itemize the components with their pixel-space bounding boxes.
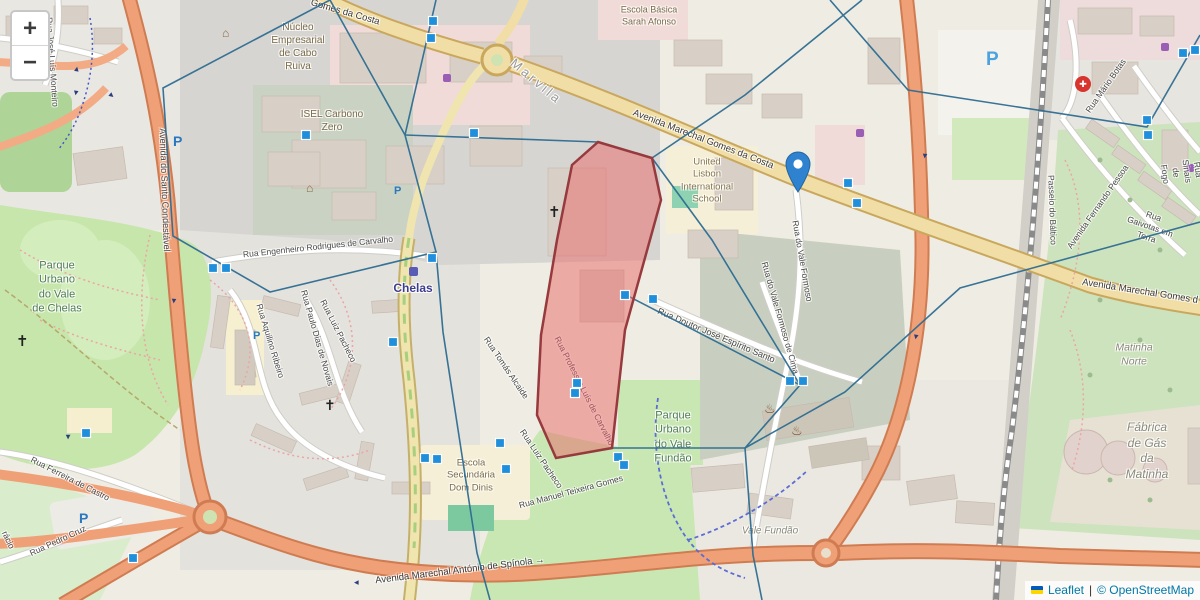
- mesh-line[interactable]: [628, 296, 800, 385]
- mesh-line[interactable]: [163, 0, 490, 600]
- vertex-handle[interactable]: [427, 34, 436, 43]
- vertex-handle[interactable]: [1191, 46, 1200, 55]
- vertex-handle[interactable]: [496, 439, 505, 448]
- vertex-handle[interactable]: [433, 455, 442, 464]
- vertex-handle[interactable]: [573, 379, 582, 388]
- ukraine-flag-icon: [1031, 586, 1043, 594]
- vertex-handle[interactable]: [621, 291, 630, 300]
- mesh-line[interactable]: [652, 158, 800, 448]
- map-canvas[interactable]: Rua José Luís Monteiro Avenida do Santo …: [0, 0, 1200, 600]
- mesh-line[interactable]: [830, 0, 1200, 127]
- mesh-line[interactable]: [652, 0, 862, 158]
- vertex-handle[interactable]: [1143, 116, 1152, 125]
- vertex-handle[interactable]: [389, 338, 398, 347]
- vertex-handle[interactable]: [470, 129, 479, 138]
- vertex-handle[interactable]: [82, 429, 91, 438]
- selected-zone-polygon[interactable]: [537, 142, 661, 458]
- mesh-line[interactable]: [330, 0, 436, 252]
- vertex-handle[interactable]: [502, 465, 511, 474]
- vertex-handle[interactable]: [1144, 131, 1153, 140]
- vertex-handle[interactable]: [222, 264, 231, 273]
- vertex-handle[interactable]: [853, 199, 862, 208]
- vector-overlay: [0, 0, 1200, 600]
- vertex-handle[interactable]: [129, 554, 138, 563]
- vertex-handle[interactable]: [799, 377, 808, 386]
- mesh-line[interactable]: [745, 448, 762, 600]
- mesh-line[interactable]: [745, 222, 1200, 448]
- zoom-out-button[interactable]: −: [12, 45, 48, 79]
- vertex-handle[interactable]: [429, 17, 438, 26]
- vertex-handle[interactable]: [428, 254, 437, 263]
- vertex-handle[interactable]: [786, 377, 795, 386]
- vertex-handle[interactable]: [302, 131, 311, 140]
- attribution-separator: |: [1089, 583, 1092, 597]
- zoom-in-button[interactable]: +: [12, 12, 48, 45]
- vertex-handle[interactable]: [571, 389, 580, 398]
- vertex-handle[interactable]: [209, 264, 218, 273]
- vertex-handle[interactable]: [649, 295, 658, 304]
- openstreetmap-link[interactable]: © OpenStreetMap: [1097, 583, 1194, 597]
- zoom-control: + −: [10, 10, 50, 81]
- vertex-handle[interactable]: [1179, 49, 1188, 58]
- vertex-handle[interactable]: [620, 461, 629, 470]
- vertex-handle[interactable]: [421, 454, 430, 463]
- vertex-handle[interactable]: [844, 179, 853, 188]
- attribution-bar: Leaflet | © OpenStreetMap: [1025, 581, 1200, 600]
- leaflet-link[interactable]: Leaflet: [1048, 583, 1084, 597]
- map-marker[interactable]: [785, 151, 811, 193]
- mesh-line[interactable]: [405, 135, 598, 142]
